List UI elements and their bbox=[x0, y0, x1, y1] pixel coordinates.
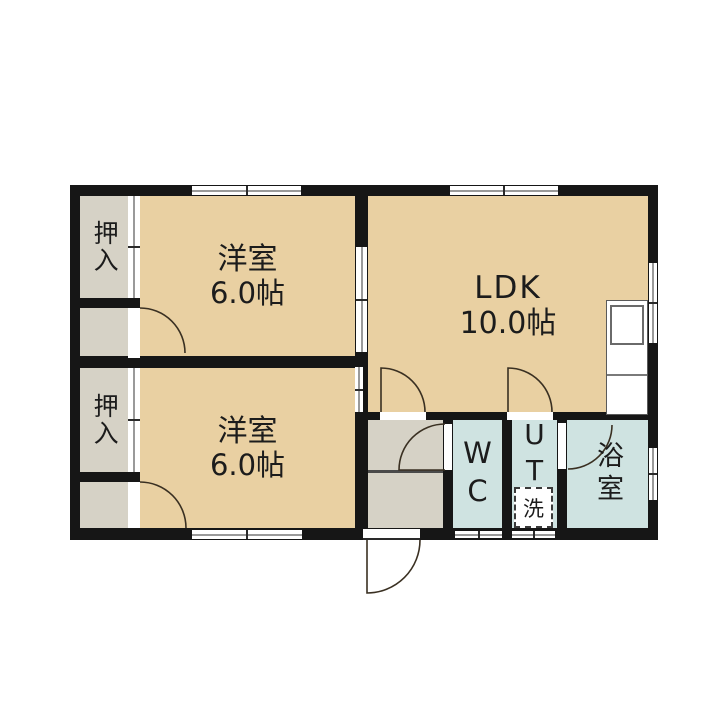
door-opening bbox=[380, 412, 426, 420]
window-symbol bbox=[649, 448, 657, 500]
room-storage2 bbox=[80, 482, 128, 528]
ut-label: UT bbox=[512, 420, 557, 488]
closet1-label: 押入 bbox=[80, 196, 128, 298]
wall-wc-ut bbox=[502, 420, 512, 528]
ut-name: UT bbox=[518, 418, 551, 490]
door-arc bbox=[367, 540, 420, 593]
window-symbol bbox=[192, 530, 302, 539]
closet2-label: 押入 bbox=[80, 368, 128, 472]
window-symbol bbox=[192, 186, 301, 195]
sliding-door-symbol bbox=[128, 368, 140, 472]
window-symbol bbox=[450, 186, 558, 195]
wc-label: WC bbox=[453, 420, 502, 528]
window-symbol bbox=[455, 531, 502, 538]
entrance-opening bbox=[363, 529, 420, 540]
room-hallway bbox=[368, 420, 443, 470]
closet2-name: 押入 bbox=[91, 393, 117, 447]
wc-name: WC bbox=[461, 436, 495, 512]
wall-room-divider bbox=[70, 356, 368, 368]
washing-machine-box: 洗 bbox=[514, 487, 553, 528]
wall-closet2-divider bbox=[70, 472, 140, 482]
bedroom2-name: 洋室 bbox=[218, 415, 278, 449]
ldk-size: 10.0帖 bbox=[460, 307, 557, 342]
door-opening bbox=[558, 423, 566, 469]
sliding-door-symbol bbox=[355, 367, 363, 412]
bedroom1-size: 6.0帖 bbox=[210, 277, 285, 309]
entrance-step-line bbox=[368, 470, 443, 473]
closet1-name: 押入 bbox=[91, 220, 117, 274]
washing-machine-label: 洗 bbox=[523, 493, 544, 523]
sliding-door-symbol bbox=[356, 247, 367, 352]
window-symbol bbox=[649, 263, 657, 343]
bath-name: 浴室 bbox=[588, 441, 627, 507]
ldk-name: LDK bbox=[474, 271, 541, 307]
wall-closet1-divider bbox=[70, 298, 140, 308]
room-entrance bbox=[368, 473, 443, 528]
door-opening bbox=[128, 308, 140, 358]
door-opening bbox=[128, 482, 140, 528]
bedroom2-label: 洋室 6.0帖 bbox=[140, 368, 355, 528]
room-storage1 bbox=[80, 308, 128, 358]
sliding-door-symbol bbox=[128, 196, 140, 298]
ldk-label: LDK 10.0帖 bbox=[368, 200, 648, 412]
bath-label: 浴室 bbox=[567, 420, 648, 528]
door-opening bbox=[444, 424, 452, 470]
bedroom2-size: 6.0帖 bbox=[210, 449, 285, 481]
window-symbol bbox=[512, 531, 555, 538]
bedroom1-name: 洋室 bbox=[218, 243, 278, 277]
bedroom1-label: 洋室 6.0帖 bbox=[140, 196, 355, 356]
floor-plan: 洗 洋室 6.0帖 洋室 6.0帖 LDK 10.0帖 押入 押入 WC UT bbox=[0, 0, 720, 720]
